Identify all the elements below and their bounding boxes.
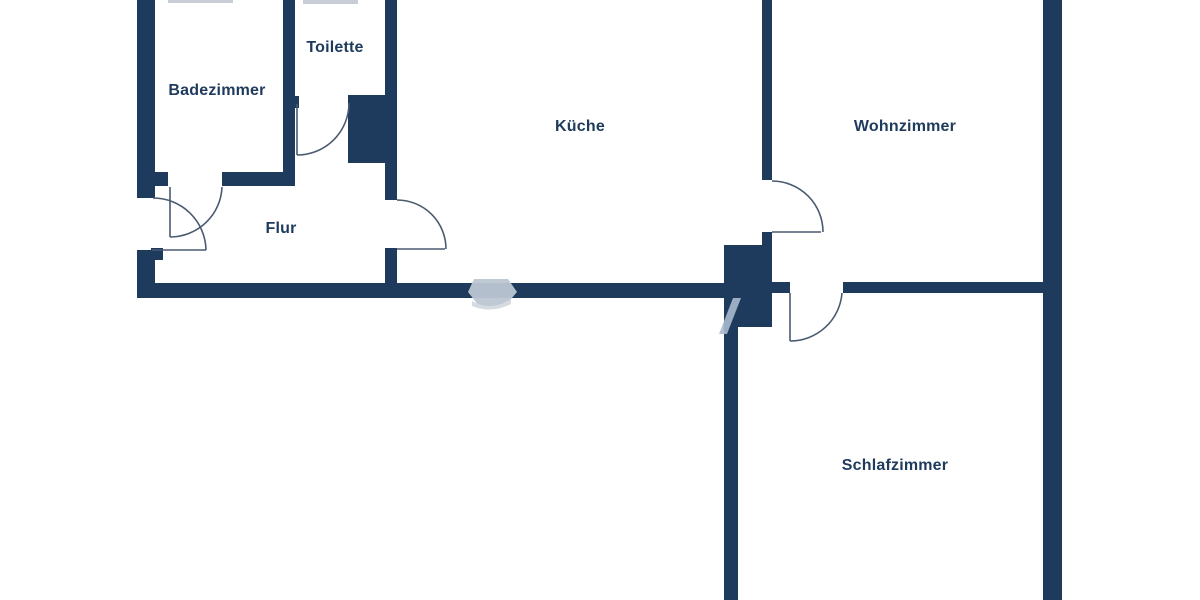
room-label-wohnzimmer: Wohnzimmer [854, 118, 956, 136]
schlafzimmer-door-arc [790, 293, 842, 341]
wall-kueche-wohnzimmer [762, 0, 772, 180]
floor-plan: Badezimmer Toilette Flur Küche Wohnzimme… [0, 0, 1200, 600]
wohnzimmer-door-arc [772, 181, 823, 232]
badezimmer-fixture-hint [168, 0, 233, 3]
wall-flur-kueche-south [137, 283, 724, 298]
walls-layer [137, 0, 1062, 600]
wall-schlafzimmer-north [843, 282, 1062, 293]
wall-badezimmer-toilette [283, 0, 295, 186]
fixture-hints-layer [168, 0, 358, 4]
wohnzimmer-door-jamb-stub [762, 232, 772, 246]
entrance-door-arc [153, 198, 206, 250]
wall-left-outer-upper [137, 0, 155, 198]
room-label-kueche: Küche [555, 118, 605, 136]
room-label-toilette: Toilette [306, 39, 363, 57]
wall-schlafzimmer-west [724, 327, 738, 600]
toilette-door-arc [297, 103, 349, 155]
wall-right-outer [1043, 0, 1062, 600]
room-label-schlafzimmer: Schlafzimmer [842, 457, 948, 475]
badezimmer-door-arc [170, 187, 222, 237]
toilette-fixture-hint [303, 0, 358, 4]
schlafzimmer-door-jamb-stub [772, 282, 790, 293]
kueche-door-arc [397, 200, 446, 249]
room-label-badezimmer: Badezimmer [168, 82, 265, 100]
wall-badezimmer-south-east [222, 172, 295, 186]
wall-badezimmer-south-west [137, 172, 168, 186]
room-label-flur: Flur [265, 220, 296, 238]
shaft-block [348, 95, 390, 163]
